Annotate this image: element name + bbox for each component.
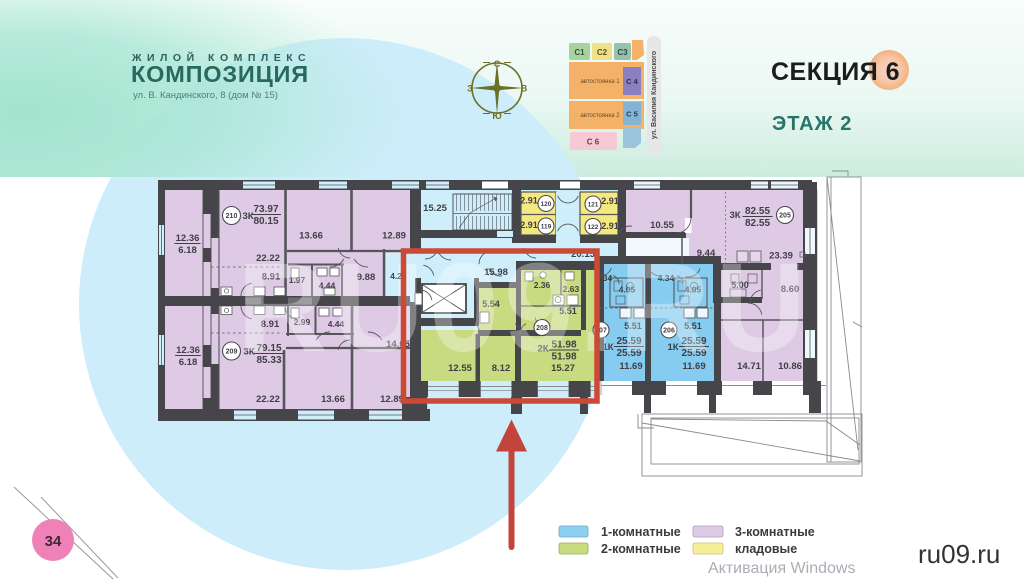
svg-text:2-комнатные: 2-комнатные xyxy=(601,542,681,556)
svg-text:С 5: С 5 xyxy=(626,110,638,119)
svg-text:82.55: 82.55 xyxy=(745,206,770,217)
svg-text:Ю: Ю xyxy=(492,111,501,121)
svg-text:2.91: 2.91 xyxy=(520,196,538,206)
svg-text:кладовые: кладовые xyxy=(735,542,797,556)
svg-text:12.36: 12.36 xyxy=(176,233,200,244)
svg-text:205: 205 xyxy=(779,213,791,220)
svg-text:С: С xyxy=(494,59,501,69)
svg-text:2.91: 2.91 xyxy=(520,220,538,230)
svg-text:З: З xyxy=(467,84,473,94)
svg-text:209: 209 xyxy=(226,349,238,356)
svg-text:12.36: 12.36 xyxy=(176,345,200,356)
svg-text:КОМПОЗИЦИЯ: КОМПОЗИЦИЯ xyxy=(131,61,309,87)
svg-text:3-комнатные: 3-комнатные xyxy=(735,525,815,539)
svg-text:210: 210 xyxy=(226,213,238,220)
svg-text:119: 119 xyxy=(541,223,552,230)
svg-text:73.97: 73.97 xyxy=(253,204,278,215)
svg-text:ЭТАЖ 2: ЭТАЖ 2 xyxy=(772,113,852,135)
svg-text:C1: C1 xyxy=(574,48,585,57)
svg-text:ул. В. Кандинского, 8 (дом № 1: ул. В. Кандинского, 8 (дом № 15) xyxy=(133,90,278,101)
svg-text:12.89: 12.89 xyxy=(380,394,404,405)
svg-text:Активация Windows: Активация Windows xyxy=(708,560,855,577)
svg-text:С 4: С 4 xyxy=(626,77,639,86)
svg-text:С 6: С 6 xyxy=(587,138,600,147)
svg-text:15.25: 15.25 xyxy=(423,203,447,214)
svg-text:2.91: 2.91 xyxy=(601,196,619,206)
svg-text:6.18: 6.18 xyxy=(179,357,198,368)
svg-text:10.55: 10.55 xyxy=(650,220,674,231)
svg-text:C2: C2 xyxy=(597,48,608,57)
svg-text:3К: 3К xyxy=(729,210,740,221)
svg-text:6.18: 6.18 xyxy=(178,245,197,256)
svg-text:C3: C3 xyxy=(617,48,628,57)
svg-text:22.22: 22.22 xyxy=(256,394,280,405)
svg-text:ул. Василия Кандинского: ул. Василия Кандинского xyxy=(651,51,658,139)
svg-text:13.66: 13.66 xyxy=(321,394,345,405)
svg-text:80.15: 80.15 xyxy=(253,216,278,227)
svg-text:82.55: 82.55 xyxy=(745,218,770,229)
svg-text:В: В xyxy=(521,84,528,94)
svg-text:34: 34 xyxy=(45,533,62,550)
svg-text:СЕКЦИЯ 6: СЕКЦИЯ 6 xyxy=(771,58,900,86)
svg-text:автостоянка 2: автостоянка 2 xyxy=(580,113,620,119)
svg-text:1-комнатные: 1-комнатные xyxy=(601,525,681,539)
svg-text:ru09.ru: ru09.ru xyxy=(918,539,1000,569)
svg-text:2.91: 2.91 xyxy=(601,221,619,231)
svg-text:автостоянка 1: автостоянка 1 xyxy=(580,79,620,85)
svg-text:3К: 3К xyxy=(242,211,253,222)
svg-text:121: 121 xyxy=(588,201,599,208)
svg-text:RU09.RU: RU09.RU xyxy=(237,237,811,378)
svg-text:120: 120 xyxy=(541,201,552,208)
svg-text:122: 122 xyxy=(588,224,599,231)
